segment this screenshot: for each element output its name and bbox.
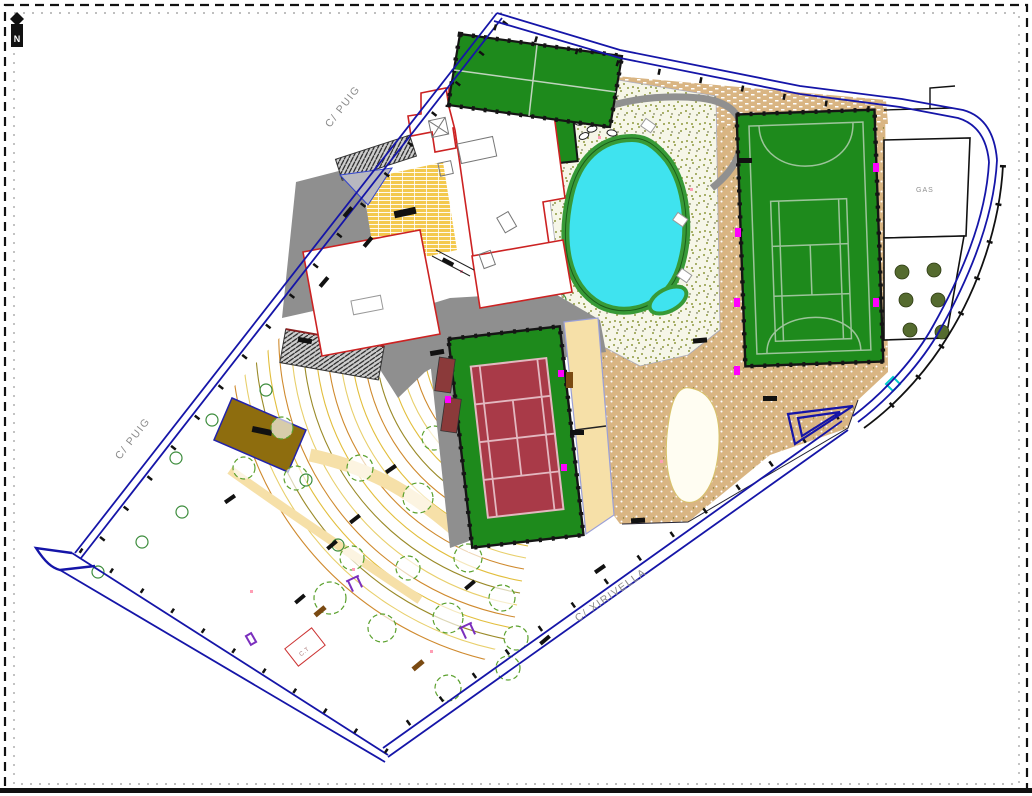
street-label-puig-lower: C/ PUIG: [113, 415, 153, 461]
transformer-hut: C.T: [285, 628, 325, 666]
building-south-wing: [303, 230, 440, 356]
multisport-court: [737, 110, 884, 367]
site-plan-drawing: N: [0, 0, 1032, 796]
street-label-puig-upper: C/ PUIG: [323, 83, 363, 129]
tennis-court: [448, 326, 583, 547]
bottom-border-bar: [0, 788, 1032, 793]
gas-parcel-label: GAS: [916, 187, 934, 194]
north-arrow-icon: N: [10, 12, 24, 47]
transformer-label: C.T: [299, 646, 311, 658]
boundary-ticks: [80, 550, 388, 752]
cad-site-plan-canvas[interactable]: N: [0, 0, 1032, 796]
kiosk-mark: [566, 372, 573, 388]
north-letter: N: [14, 34, 21, 44]
street-label-xirivella: C/ XIRIVELLA: [573, 566, 649, 624]
dirt-terrace-pad: [214, 398, 306, 472]
southwest-outer-curb: [72, 553, 388, 755]
